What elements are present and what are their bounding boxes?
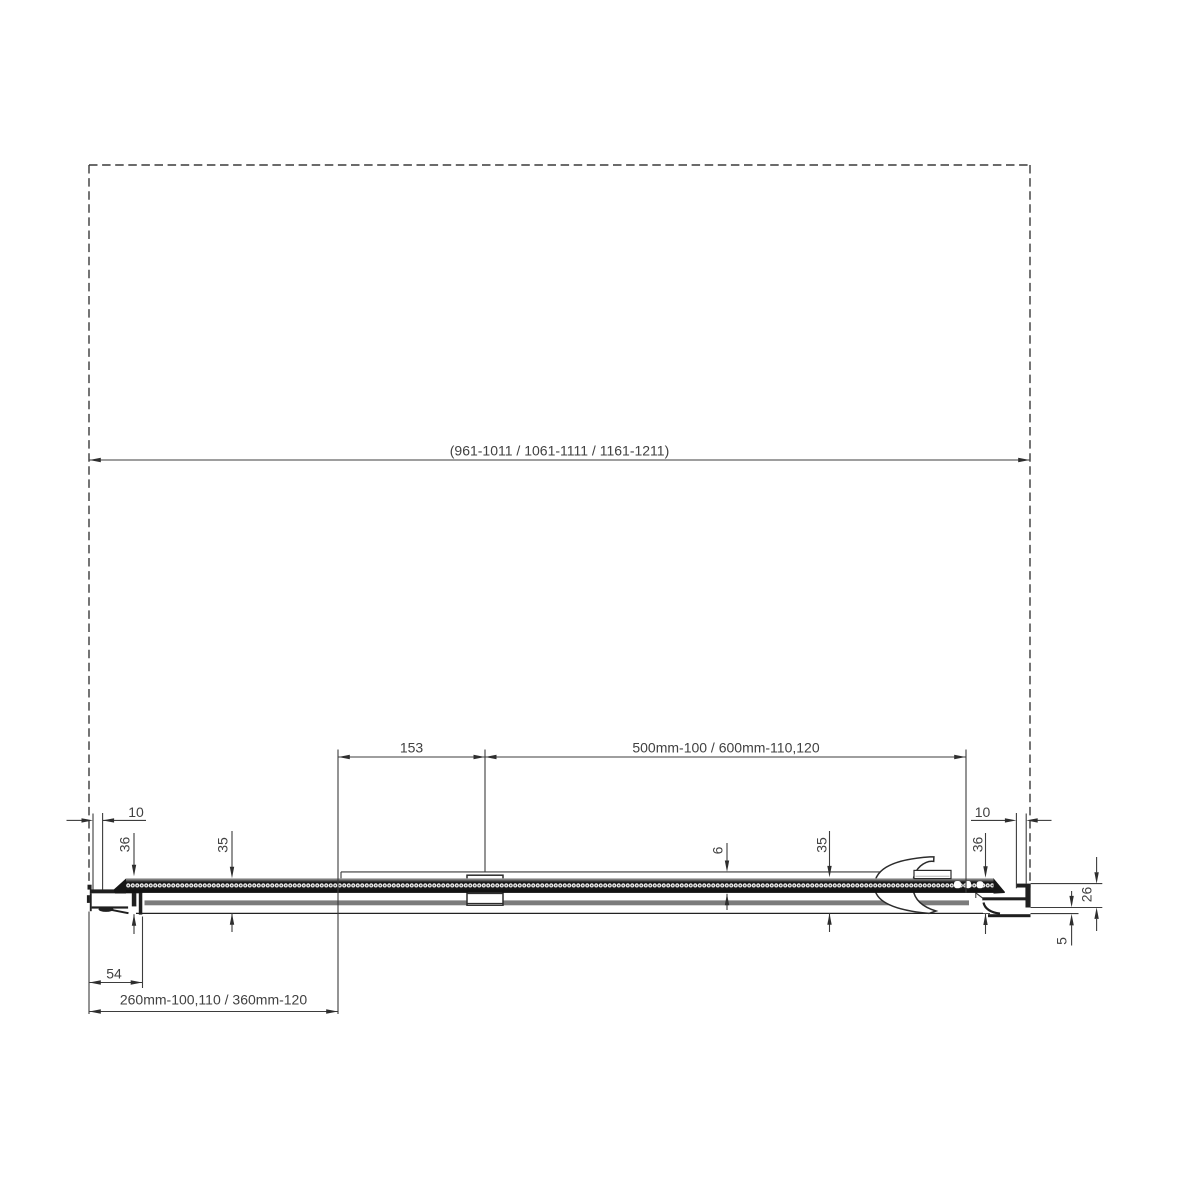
svg-text:35: 35 <box>215 837 231 853</box>
svg-text:36: 36 <box>970 837 986 853</box>
svg-text:54: 54 <box>106 966 122 982</box>
svg-text:5: 5 <box>1054 937 1070 945</box>
svg-text:260mm-100,110 / 360mm-120: 260mm-100,110 / 360mm-120 <box>120 992 307 1008</box>
svg-text:36: 36 <box>117 837 133 853</box>
svg-text:35: 35 <box>814 837 830 853</box>
svg-text:26: 26 <box>1079 887 1095 903</box>
svg-text:500mm-100 / 600mm-110,120: 500mm-100 / 600mm-110,120 <box>632 740 819 756</box>
svg-text:10: 10 <box>975 804 991 820</box>
svg-text:153: 153 <box>400 740 424 756</box>
svg-text:(961-1011 / 1061-1111 / 1161-1: (961-1011 / 1061-1111 / 1161-1211) <box>450 443 670 459</box>
svg-text:10: 10 <box>128 804 144 820</box>
svg-text:6: 6 <box>710 846 726 854</box>
